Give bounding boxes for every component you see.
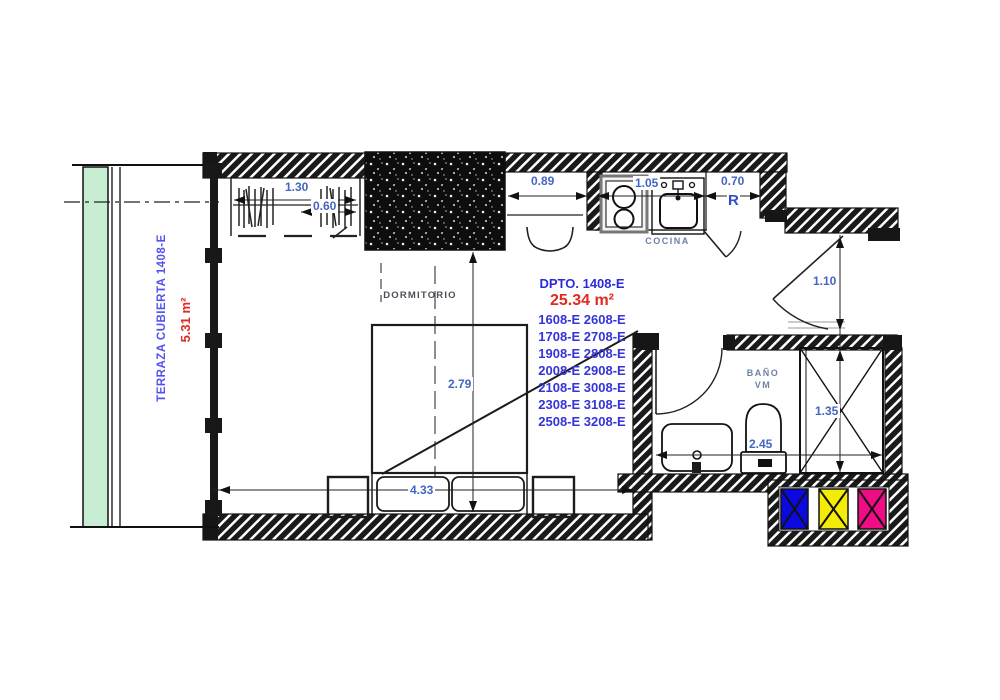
terrace-area: 5.31 m² bbox=[178, 285, 194, 355]
bathroom bbox=[656, 348, 883, 473]
terrace bbox=[64, 165, 219, 527]
unit-stack-row: 2108-E 3008-E bbox=[530, 379, 634, 396]
dim-entry-clearance: 1.10 bbox=[811, 274, 838, 288]
unit-area: 25.34 m² bbox=[542, 292, 622, 310]
bed bbox=[372, 325, 527, 473]
kitchen-label: COCINA bbox=[640, 236, 695, 246]
dim-fridge-space: 0.70 bbox=[719, 174, 746, 188]
structural-column bbox=[365, 152, 505, 250]
unit-stack-row: 1908-E 2808-E bbox=[530, 345, 634, 362]
dim-bedroom-depth: 2.79 bbox=[446, 377, 473, 391]
plan-drawing bbox=[0, 0, 1000, 700]
window-glazing bbox=[205, 163, 222, 517]
refrigerator-label: R bbox=[727, 192, 740, 209]
nightstand-left bbox=[328, 477, 368, 517]
unit-stack-row: 1608-E 2608-E bbox=[530, 311, 634, 328]
floor-plan: TERRAZA CUBIERTA 1408-E 5.31 m² 1.30 0.6… bbox=[0, 0, 1000, 700]
wall-bedroom-bottom bbox=[203, 514, 648, 540]
nightstand-right bbox=[533, 477, 574, 517]
desk-area bbox=[507, 215, 583, 251]
unit-stack-row: 2508-E 3208-E bbox=[530, 413, 634, 430]
terrace-label: TERRAZA CUBIERTA 1408-E bbox=[156, 218, 172, 418]
terrace-green-strip bbox=[83, 167, 108, 527]
dim-kitchen-counter: 1.05 bbox=[633, 176, 660, 190]
wall-top-kitchen bbox=[505, 153, 787, 172]
wall-top-bedroom bbox=[203, 153, 365, 178]
bedroom-label: DORMITORIO bbox=[383, 290, 457, 301]
chair-icon bbox=[527, 227, 573, 251]
unit-name: DPTO. 1408-E bbox=[530, 276, 634, 291]
pillow-right bbox=[452, 477, 524, 511]
unit-stack-row: 2308-E 3108-E bbox=[530, 396, 634, 413]
kitchen-door bbox=[704, 231, 741, 257]
dim-shower-width: 1.35 bbox=[813, 404, 840, 418]
dim-bath-width: 2.45 bbox=[747, 437, 774, 451]
dim-desk: 0.89 bbox=[529, 174, 556, 188]
bathroom-label-line2: VM bbox=[736, 380, 790, 390]
bathroom-label-line1: BAÑO bbox=[736, 368, 790, 378]
wall-bath-left bbox=[633, 335, 652, 540]
dim-closet-depth: 0.60 bbox=[311, 199, 338, 213]
unit-stack-row: 2008-E 2908-E bbox=[530, 362, 634, 379]
dim-bedroom-width: 4.33 bbox=[408, 483, 435, 497]
wall-bath-right bbox=[885, 348, 902, 475]
entry-door-swing bbox=[773, 299, 828, 329]
dim-closet-width: 1.30 bbox=[283, 180, 310, 194]
bath-door bbox=[656, 348, 722, 414]
unit-stack-row: 1708-E 2708-E bbox=[530, 328, 634, 345]
bath-sink-icon bbox=[662, 424, 732, 473]
entry-door-leaf bbox=[773, 236, 843, 299]
color-legend bbox=[779, 487, 889, 531]
